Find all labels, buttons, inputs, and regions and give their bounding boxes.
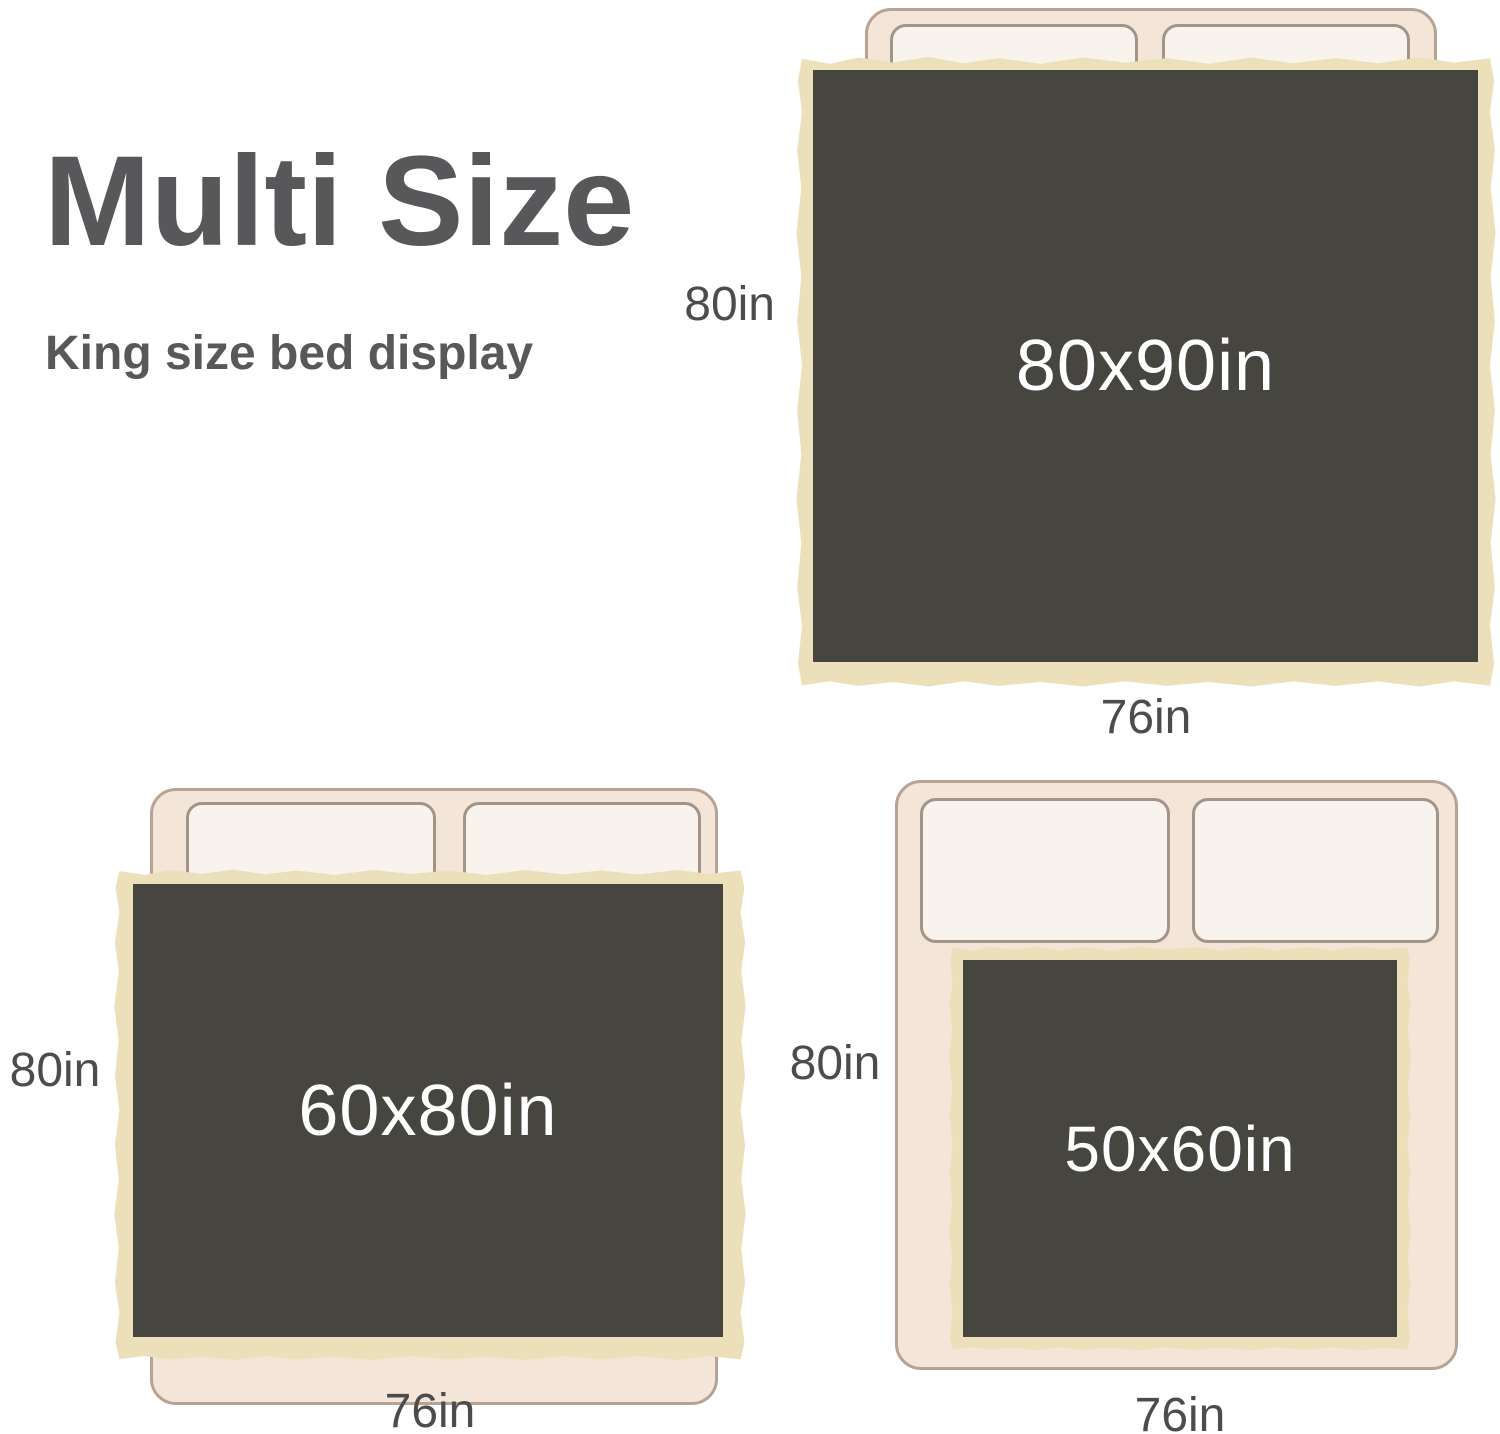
height-dimension-label: 80in bbox=[0, 1047, 110, 1095]
pillow-left bbox=[920, 798, 1170, 943]
blanket-size-label: 50x60in bbox=[1064, 1117, 1295, 1181]
blanket-80x90: 80x90in bbox=[795, 55, 1497, 689]
blanket-size-label: 60x80in bbox=[298, 1075, 557, 1147]
pillow-right bbox=[1192, 798, 1439, 943]
page-subtitle: King size bed display bbox=[45, 326, 533, 381]
blanket-face: 80x90in bbox=[813, 70, 1478, 662]
size-guide-infographic: Multi Size King size bed display 80x90in… bbox=[0, 0, 1500, 1434]
blanket-size-label: 80x90in bbox=[1016, 330, 1275, 402]
width-dimension-label: 76in bbox=[113, 1388, 747, 1434]
blanket-50x60: 50x60in bbox=[948, 945, 1412, 1352]
height-dimension-label: 80in bbox=[780, 1040, 890, 1088]
height-dimension-label: 80in bbox=[655, 281, 775, 329]
width-dimension-label: 76in bbox=[795, 694, 1497, 742]
bed-diagram-50x60: 50x60in 80in 76in bbox=[760, 770, 1500, 1434]
blanket-60x80: 60x80in bbox=[113, 868, 747, 1362]
blanket-face: 60x80in bbox=[133, 884, 723, 1337]
width-dimension-label: 76in bbox=[948, 1392, 1412, 1434]
blanket-face: 50x60in bbox=[963, 960, 1397, 1337]
page-title: Multi Size bbox=[44, 138, 634, 266]
bed-diagram-60x80: 60x80in 80in 76in bbox=[0, 770, 800, 1434]
bed-diagram-80x90: 80x90in 80in 76in bbox=[620, 0, 1500, 748]
